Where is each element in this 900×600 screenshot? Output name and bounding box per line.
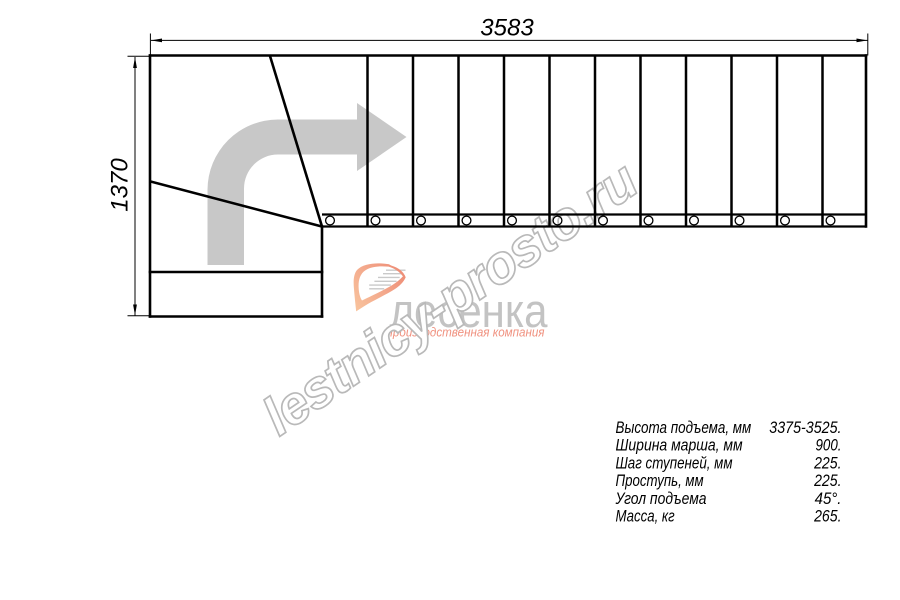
svg-text:225.: 225. bbox=[813, 472, 841, 490]
svg-text:Ширина марша, мм: Ширина марша, мм bbox=[616, 437, 743, 455]
svg-text:1370: 1370 bbox=[106, 158, 133, 212]
svg-text:Угол подъема: Угол подъема bbox=[615, 490, 707, 508]
svg-text:Шаг ступеней, мм: Шаг ступеней, мм bbox=[616, 454, 733, 472]
svg-text:3583: 3583 bbox=[480, 15, 534, 42]
svg-text:3375-3525.: 3375-3525. bbox=[769, 419, 841, 437]
svg-text:225.: 225. bbox=[813, 454, 841, 472]
svg-text:265.: 265. bbox=[813, 507, 841, 525]
svg-text:Высота подъема, мм: Высота подъема, мм bbox=[616, 419, 752, 437]
svg-text:Проступь, мм: Проступь, мм bbox=[616, 472, 704, 490]
svg-text:Масса, кг: Масса, кг bbox=[616, 507, 675, 525]
svg-text:45°.: 45°. bbox=[815, 490, 842, 508]
svg-text:900.: 900. bbox=[816, 437, 842, 455]
